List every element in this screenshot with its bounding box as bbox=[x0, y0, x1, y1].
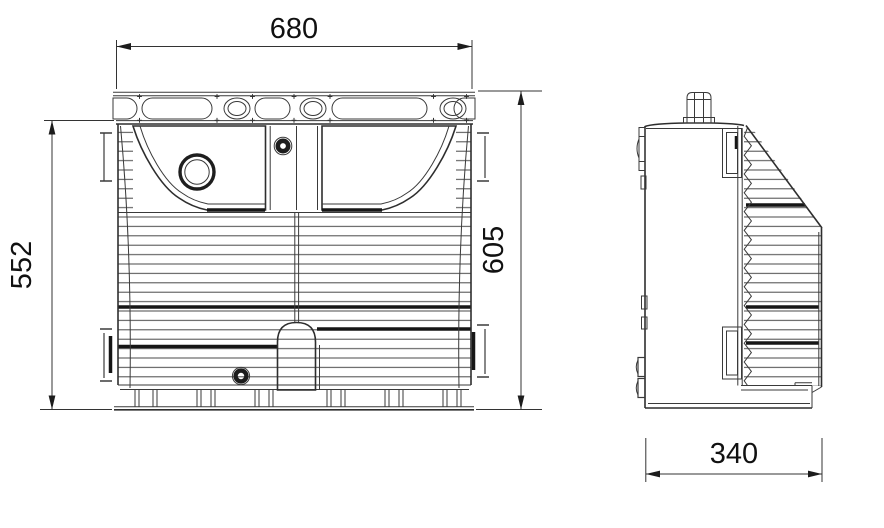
side-view bbox=[636, 93, 822, 409]
side-base bbox=[741, 383, 822, 408]
arrowhead bbox=[518, 396, 525, 410]
mount-clip-front-bottom-left bbox=[100, 329, 112, 381]
strip-slot bbox=[255, 98, 290, 119]
arrowhead bbox=[458, 43, 473, 50]
arrowhead bbox=[808, 471, 822, 478]
bolt-hole bbox=[278, 141, 288, 151]
arrowhead bbox=[49, 396, 56, 410]
mount-clip-front-top-right bbox=[477, 133, 489, 181]
front-view bbox=[100, 92, 489, 410]
dim-label-side-depth: 340 bbox=[710, 438, 758, 470]
side-bracket-bottom bbox=[723, 327, 742, 379]
filler-cap bbox=[684, 93, 715, 124]
arrowhead bbox=[646, 471, 660, 478]
mount-clip-front-top-left bbox=[100, 133, 112, 181]
base-foot-slots bbox=[135, 390, 461, 407]
arrowhead bbox=[518, 91, 525, 105]
strip-slot bbox=[332, 98, 427, 119]
base-plinth bbox=[114, 385, 474, 410]
top-profile-strip bbox=[113, 92, 475, 123]
mount-clip-front-bottom-right bbox=[474, 325, 490, 377]
tank-orthographic-drawing: 680 552 605 340 bbox=[0, 0, 884, 528]
side-top-edge bbox=[645, 123, 744, 127]
dim-label-front-width: 680 bbox=[270, 13, 318, 45]
strip-slot-left-end bbox=[113, 98, 137, 119]
technical-drawing-page: 680 552 605 340 bbox=[0, 0, 884, 528]
side-rib-field bbox=[744, 128, 822, 386]
side-bracket-top bbox=[723, 129, 742, 178]
rib-margin-left bbox=[118, 128, 133, 212]
arrowhead bbox=[117, 43, 132, 50]
dim-label-front-height-left: 552 bbox=[6, 241, 38, 289]
centre-column bbox=[270, 126, 317, 210]
dimension-width-680: 680 bbox=[117, 13, 473, 89]
dim-label-front-height-right: 605 bbox=[478, 226, 510, 274]
dimension-depth-340: 340 bbox=[646, 438, 822, 482]
rib-margin-right bbox=[456, 128, 471, 212]
side-clip-bottom bbox=[636, 358, 645, 398]
dimension-height-552: 552 bbox=[6, 121, 114, 410]
right-recess bbox=[322, 126, 456, 210]
strip-slot-right-end bbox=[454, 98, 475, 119]
dimension-height-605: 605 bbox=[476, 91, 542, 410]
arrowhead bbox=[49, 121, 56, 135]
left-recess bbox=[133, 126, 266, 210]
strip-slot bbox=[142, 98, 212, 119]
